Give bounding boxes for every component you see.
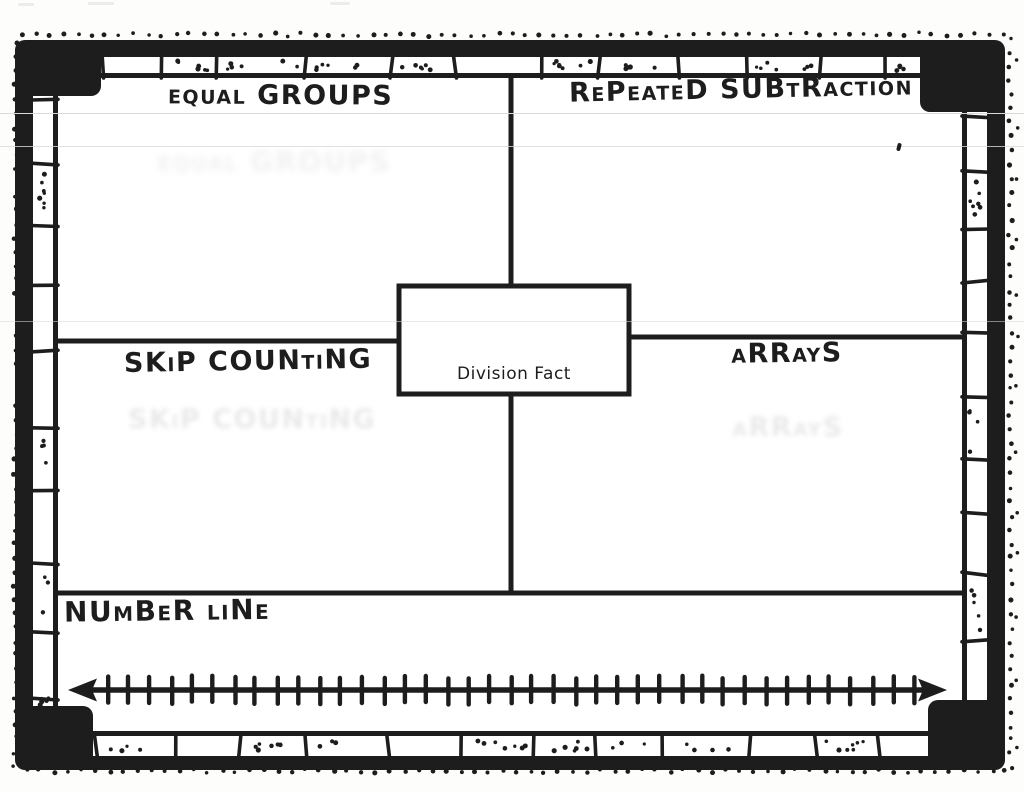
scan-noise-artifact (18, 3, 34, 6)
quadrant-label-equal-groups: equal GROUPS (168, 81, 386, 109)
scan-noise-artifact (88, 2, 114, 5)
scan-ghost-smudge: equal GROUPS (84, 148, 464, 176)
scan-noise-artifact (330, 2, 350, 5)
scan-ghost-skip-counting: SKiP COUNtiNG (128, 406, 368, 433)
scan-line-artifact (0, 113, 1024, 114)
quadrant-label-skip-counting: SKiP COUNtiNG (124, 346, 358, 377)
scan-line-artifact (0, 146, 1024, 147)
center-box-label: Division Fact (399, 366, 629, 383)
scan-line-artifact (0, 321, 1024, 322)
quadrant-label-arrays: aRRayS (720, 339, 854, 368)
quadrant-label-repeated-subtraction: RePeateD SUBtRaction (552, 72, 930, 107)
worksheet-page: equal GROUPS RePeateD SUBtRaction SKiP C… (0, 0, 1024, 792)
scan-ghost-arrays: aRRayS (722, 414, 854, 441)
section-label-number-line: NUmBeR liNe (64, 595, 304, 626)
worksheet-artwork (0, 0, 1024, 792)
brick-border (11, 31, 1020, 776)
